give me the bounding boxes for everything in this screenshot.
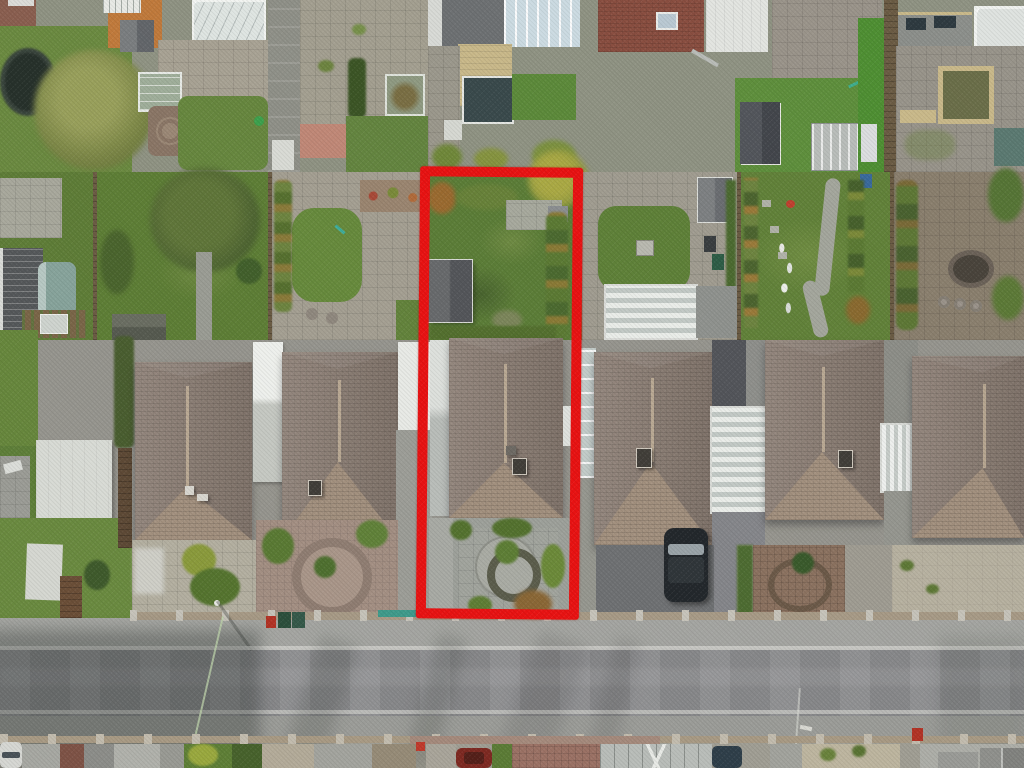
small-greenhouse-g1 <box>40 314 68 334</box>
flower-bed-g6-right <box>848 180 864 292</box>
garden-path-g2 <box>196 252 212 340</box>
lawn-ornament-g5 <box>636 240 654 256</box>
white-building-n <box>706 0 768 52</box>
patio-g1 <box>0 178 62 238</box>
house-5-chimney <box>838 450 853 468</box>
brick-wall-south-mid <box>410 736 660 744</box>
house-4-chimney <box>636 448 652 468</box>
s-lawn-dark <box>232 744 262 768</box>
shrubs-g7-left <box>896 180 918 330</box>
dark-flat-roof-h4 <box>712 340 746 408</box>
moss-patch <box>905 130 955 160</box>
conservatory-g5 <box>606 286 696 338</box>
garage-h1-h2 <box>253 342 283 482</box>
pond-dot <box>254 116 264 126</box>
autumn-bush-g6 <box>846 296 870 324</box>
s-shrub-1 <box>820 748 836 761</box>
car-roof <box>668 557 704 583</box>
bush-h5 <box>792 552 814 574</box>
s-paving-2 <box>114 744 160 768</box>
white-garage-left <box>36 440 112 518</box>
brown-fence-front-left <box>60 576 82 618</box>
white-shed-fe <box>861 124 877 162</box>
s-paving-3 <box>314 744 372 768</box>
stepping-stone-1 <box>762 200 771 207</box>
pot-g3a <box>306 308 318 320</box>
s-brick-paving <box>512 744 600 768</box>
pot-g7b <box>954 298 966 310</box>
house-1-chimney <box>185 486 194 495</box>
s-roof-1 <box>938 752 978 768</box>
house-4-roof <box>594 352 712 545</box>
rounded-lawn-g3 <box>292 208 362 302</box>
solar-panel-1 <box>906 18 926 30</box>
lawn-n2 <box>178 96 268 170</box>
s-shrub-2 <box>852 745 866 757</box>
bin-g5b <box>712 254 724 270</box>
weed-1 <box>318 60 334 72</box>
pot-g7c <box>970 300 982 312</box>
house-1-vent <box>197 494 208 501</box>
s-yellow-bush <box>188 744 218 766</box>
planter-strip <box>900 110 936 123</box>
shrub-h6a <box>900 560 914 571</box>
s-red-bin <box>912 728 923 741</box>
conservatory-glass-n <box>504 0 580 47</box>
worn-white-patch-h1 <box>134 548 164 594</box>
olive-tree <box>34 50 154 170</box>
circle-bush-h2 <box>314 556 336 578</box>
shrubs-g7-right-a <box>988 168 1024 222</box>
parked-blue-grey-car <box>712 746 742 768</box>
fence-h1-left <box>118 448 132 548</box>
property-boundary-highlight <box>416 166 583 620</box>
white-shed-n4 <box>272 140 294 170</box>
red-roof-house <box>598 0 704 52</box>
s-conservatory-roof <box>600 744 712 768</box>
dark-shed-ne <box>740 102 780 164</box>
pot-g3b <box>326 312 338 324</box>
dark-window-panel <box>462 76 514 124</box>
s-drive-2 <box>160 744 184 768</box>
white-ridge-n <box>428 0 442 46</box>
stone-planter-square <box>938 66 994 124</box>
shrub-h6b <box>926 584 939 594</box>
fire-pit <box>948 250 994 288</box>
s-path <box>770 744 802 768</box>
s-stone-1 <box>262 744 314 768</box>
house-5-roof <box>765 340 884 520</box>
house-1-roof <box>135 362 252 540</box>
bushes-h2-right <box>356 520 388 548</box>
s-red-roof <box>60 744 84 768</box>
hedge-h5-left <box>737 545 753 615</box>
s-drive-1 <box>84 744 114 768</box>
white-panel-front-left <box>25 543 63 600</box>
pink-paving <box>300 124 346 158</box>
flower-bed-g6-left <box>744 178 758 328</box>
greenhouse-frame <box>103 0 141 13</box>
shrubs-g7-right-b <box>992 276 1024 320</box>
white-item-n5 <box>444 120 462 140</box>
gutter-line <box>8 0 34 6</box>
brick-circle-h2 <box>292 538 372 616</box>
house-6-roof <box>912 356 1024 538</box>
s-roof-2 <box>980 748 1024 768</box>
green-bin-2 <box>292 612 305 628</box>
flower-border-g3 <box>274 180 292 312</box>
lawn-n4 <box>346 116 428 172</box>
s-paving-4 <box>426 744 456 768</box>
lawn-left-col <box>0 330 38 446</box>
bush-g2b <box>236 258 262 284</box>
skylight <box>656 12 678 30</box>
laundry-line-items <box>774 240 800 320</box>
tall-hedge <box>348 58 366 118</box>
flat-roof-g5 <box>696 286 738 338</box>
raised-beds-g3 <box>360 180 426 212</box>
bush-row-g2 <box>100 230 134 294</box>
pot-g7a <box>938 296 950 308</box>
weed-2 <box>352 24 366 35</box>
house-2-chimney <box>308 480 322 496</box>
hedge-h1-left <box>114 336 134 448</box>
s-gravel-garden <box>802 744 900 768</box>
white-conservatory-h5 <box>712 408 767 512</box>
front-garden-h6-slabs <box>892 545 1024 618</box>
grey-shed-roof <box>120 20 154 52</box>
green-bin-1 <box>278 612 291 628</box>
greenhouse-3 <box>385 74 425 116</box>
shrub-cluster-h2 <box>262 528 294 564</box>
dark-bush-front-left <box>84 560 110 590</box>
grey-strip-h4-h5 <box>746 340 765 412</box>
stepping-stone-2 <box>770 226 779 233</box>
teal-shed-ne <box>994 128 1024 166</box>
bin-g5a <box>704 236 716 252</box>
red-car-roof <box>464 752 484 764</box>
s-lawn-2 <box>492 744 512 768</box>
teal-camper <box>38 262 76 316</box>
car-windshield <box>668 544 704 555</box>
red-bin <box>266 616 276 628</box>
artificial-lawn-n5 <box>512 74 576 120</box>
red-toy-g6 <box>786 200 795 208</box>
solar-panel-2 <box>934 16 956 28</box>
s-paving-1 <box>22 744 62 768</box>
s-stone-2 <box>372 744 416 768</box>
aerial-photo <box>0 0 1024 768</box>
s-red-item <box>416 742 425 751</box>
white-car-windshield <box>2 752 20 758</box>
house-2-roof <box>282 352 398 540</box>
